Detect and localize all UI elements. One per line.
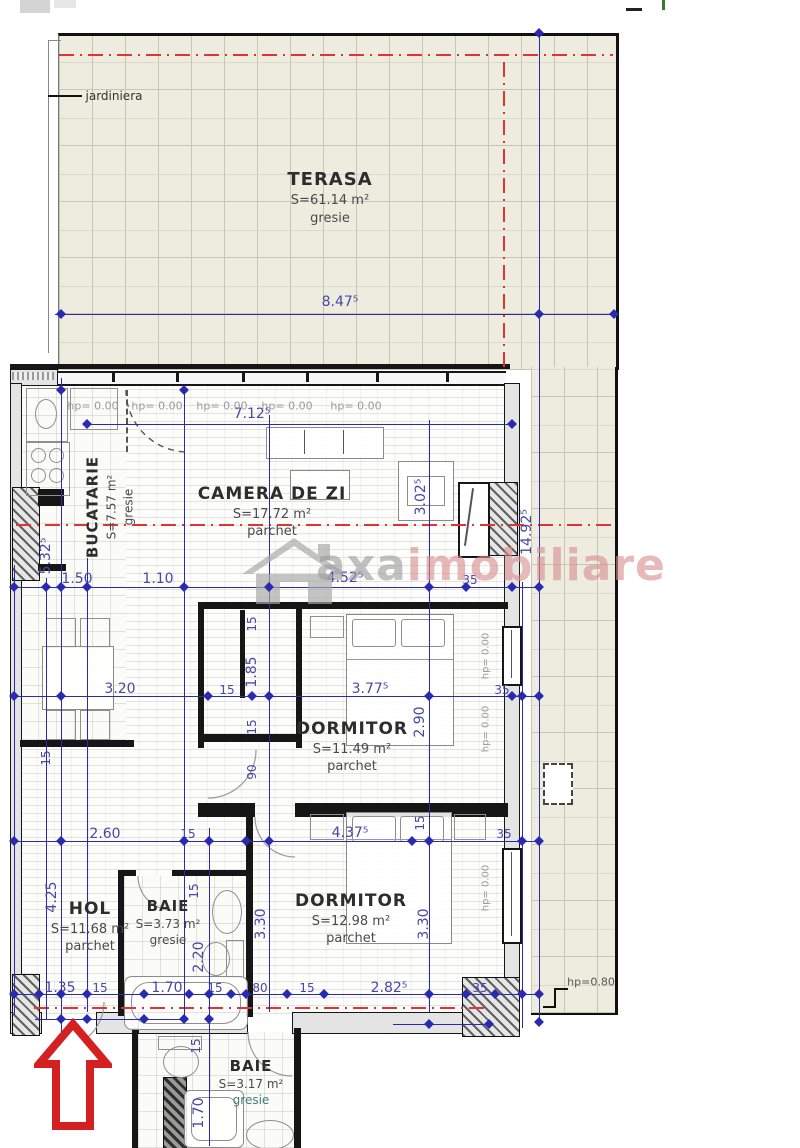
dim-15: 15 bbox=[299, 981, 314, 995]
dim-15: 15 bbox=[219, 683, 234, 697]
dim-15: 15 bbox=[92, 981, 107, 995]
room-area: S=11.68 m² bbox=[51, 921, 129, 939]
dim-80: 80 bbox=[252, 981, 267, 995]
room-label-baie1: BAIE S=3.73 m² gresie bbox=[136, 896, 201, 949]
dim-15: 15 bbox=[245, 719, 259, 734]
dim-15: 15 bbox=[39, 750, 53, 765]
floor-plan: jardiniera TERASA S=61.14 m² gresie hp=0… bbox=[0, 0, 800, 1148]
dim-3-30: 3.30 bbox=[416, 908, 432, 939]
centerline-bottom bbox=[34, 1007, 490, 1009]
room-floor: parchet bbox=[51, 938, 129, 956]
dim-2-90: 2.90 bbox=[412, 706, 428, 737]
room-area: S=11.49 m² bbox=[296, 741, 408, 759]
dim-line-vertical-main bbox=[539, 33, 540, 1025]
dim-line bbox=[393, 1024, 493, 1025]
room-area: S=7.57 m² bbox=[104, 456, 121, 558]
room-floor: gresie bbox=[121, 456, 138, 558]
dim-35: 35 bbox=[472, 981, 487, 995]
dim-3-02: 3.02⁵ bbox=[413, 479, 429, 516]
open-plan-dashed-line bbox=[126, 390, 129, 452]
dim-1-10: 1.10 bbox=[142, 571, 173, 587]
hp-label: hp= 0.00 bbox=[196, 400, 247, 413]
room-name: DORMITOR bbox=[295, 890, 407, 913]
room-name: BAIE bbox=[219, 1056, 284, 1076]
dim-8-47: 8.47⁵ bbox=[322, 294, 359, 310]
hp-label: hp= 0.00 bbox=[330, 400, 381, 413]
dim-4-37: 4.37⁵ bbox=[332, 825, 369, 841]
dim-line bbox=[522, 582, 523, 1028]
room-area: S=3.17 m² bbox=[219, 1076, 284, 1092]
watermark-text: axa imobiliare bbox=[316, 540, 666, 591]
hp-label: hp= 0.00 bbox=[481, 865, 492, 912]
dim-35: 35 bbox=[496, 827, 511, 841]
room-name: BUCATARIE bbox=[83, 456, 104, 558]
dim-line bbox=[55, 314, 615, 315]
door-arc-dormitor2 bbox=[255, 817, 295, 857]
dim-2-82: 2.82⁵ bbox=[371, 980, 408, 996]
hp-label: hp= 0.00 bbox=[131, 400, 182, 413]
dim-1-85: 1.85 bbox=[244, 656, 260, 687]
watermark-axa: axa bbox=[316, 540, 407, 591]
dim-2-60: 2.60 bbox=[89, 826, 120, 842]
dim-3-20: 3.20 bbox=[104, 681, 135, 697]
dim-5-32: 5.32⁵ bbox=[38, 538, 54, 575]
room-area: S=12.98 m² bbox=[295, 913, 407, 931]
room-area: S=17.72 m² bbox=[198, 506, 347, 524]
room-area: S=3.73 m² bbox=[136, 916, 201, 932]
dim-3-30: 3.30 bbox=[253, 908, 269, 939]
dim-line bbox=[83, 424, 515, 425]
room-floor: parchet bbox=[295, 930, 407, 948]
dim-90: 90 bbox=[245, 764, 259, 779]
centerline-terrace bbox=[59, 54, 613, 56]
entrance-arrow bbox=[34, 1018, 112, 1134]
hp-label: hp= 0.00 bbox=[261, 400, 312, 413]
dim-line bbox=[12, 696, 542, 697]
room-label-bucatarie: BUCATARIE S=7.57 m² gresie bbox=[83, 456, 138, 558]
dim-15: 15 bbox=[189, 1038, 203, 1053]
room-label-dormitor1: DORMITOR S=11.49 m² parchet bbox=[296, 718, 408, 776]
dim-15: 15 bbox=[245, 616, 259, 631]
room-floor: parchet bbox=[296, 758, 408, 776]
hp-label: hp= 0.00 bbox=[67, 400, 118, 413]
room-label-dormitor2: DORMITOR S=12.98 m² parchet bbox=[295, 890, 407, 948]
room-name: DORMITOR bbox=[296, 718, 408, 741]
room-label-hol: HOL S=11.68 m² parchet bbox=[51, 898, 129, 956]
hp-label: hp= 0.00 bbox=[481, 633, 492, 680]
room-floor: gresie bbox=[219, 1092, 284, 1108]
centerline-vertical bbox=[503, 57, 505, 367]
room-label-camera-de-zi: CAMERA DE ZI S=17.72 m² parchet bbox=[198, 483, 347, 541]
dim-1-70: 1.70 bbox=[191, 1097, 207, 1128]
dim-line bbox=[14, 565, 15, 1015]
room-name: BAIE bbox=[136, 896, 201, 916]
room-name: CAMERA DE ZI bbox=[198, 483, 347, 506]
hp-label: hp= 0.00 bbox=[481, 706, 492, 753]
dim-15: 15 bbox=[413, 815, 427, 830]
room-name: HOL bbox=[51, 898, 129, 921]
dim-3-77: 3.77⁵ bbox=[352, 681, 389, 697]
room-floor: gresie bbox=[136, 932, 201, 948]
room-label-baie2: BAIE S=3.17 m² gresie bbox=[219, 1056, 284, 1109]
dim-line bbox=[46, 578, 47, 1020]
dim-1-70: 1.70 bbox=[151, 980, 182, 996]
